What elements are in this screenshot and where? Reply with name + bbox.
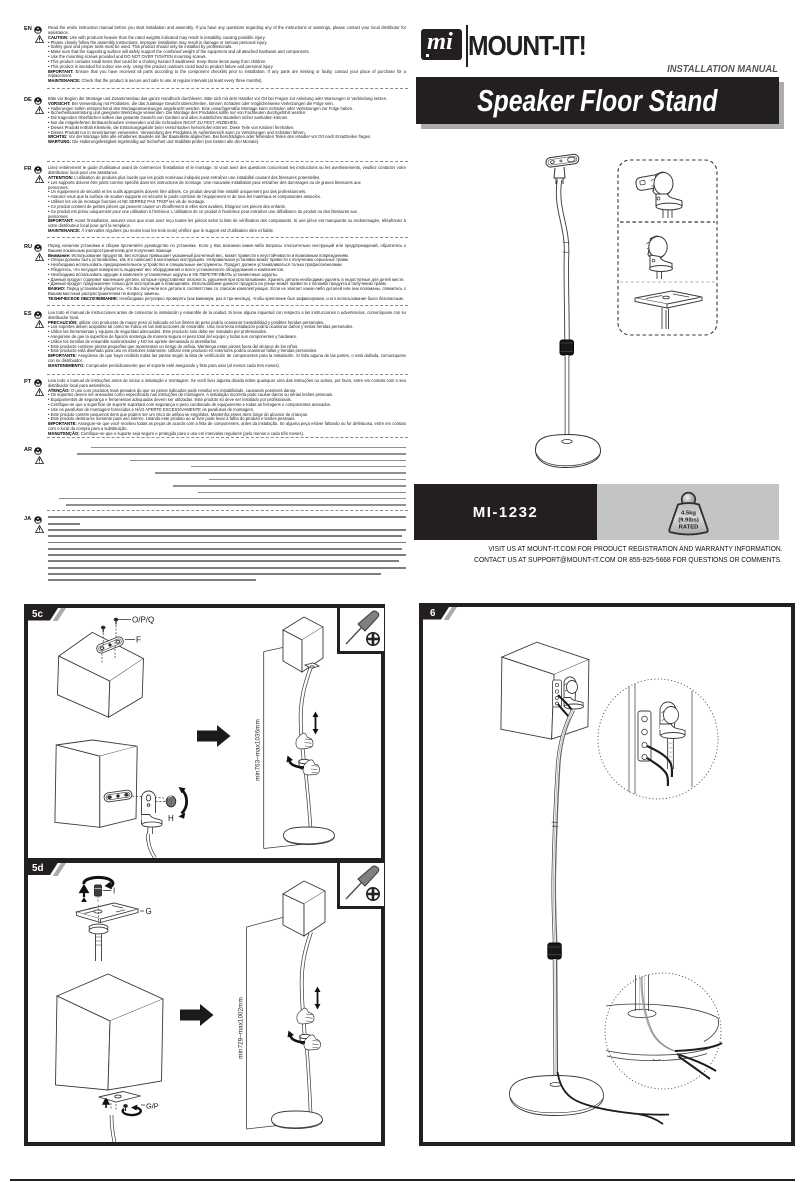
svg-text:RATED: RATED	[679, 525, 699, 531]
svg-text:min763~max1036mm: min763~max1036mm	[255, 719, 262, 781]
svg-text:G: G	[146, 907, 152, 916]
svg-text:(9.9lbs): (9.9lbs)	[678, 518, 699, 524]
svg-text:4.5kg: 4.5kg	[681, 511, 696, 517]
svg-text:F: F	[136, 636, 141, 645]
svg-text:I: I	[113, 886, 115, 895]
svg-text:H: H	[168, 814, 174, 823]
svg-text:G/P: G/P	[146, 1101, 159, 1110]
svg-text:min729~max1002mm: min729~max1002mm	[238, 997, 245, 1059]
svg-text:O/P/Q: O/P/Q	[132, 616, 154, 625]
